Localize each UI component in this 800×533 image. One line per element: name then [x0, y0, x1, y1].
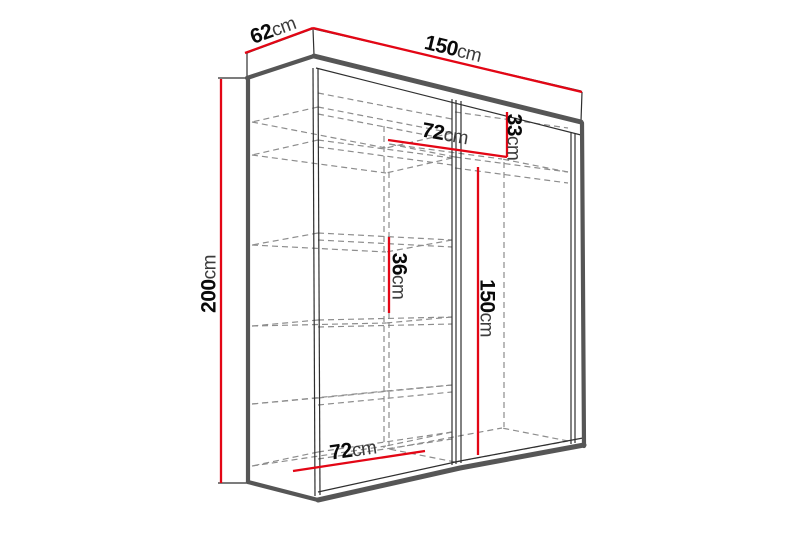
top-shelf-height-unit: cm [503, 136, 524, 160]
wardrobe-dimension-diagram: 62cm 150cm 200cm 72cm 33cm 36cm 150cm 72… [0, 0, 800, 533]
top-shelf-height-label: 33cm [504, 114, 525, 161]
hanging-space-height-value: 150 [476, 279, 499, 313]
shelf-spacing-value: 36 [388, 253, 411, 275]
height-dimension-label: 200cm [199, 255, 220, 313]
height-value: 200 [198, 279, 221, 313]
hanging-space-height-unit: cm [476, 313, 497, 337]
top-shelf-height-value: 33 [503, 114, 526, 136]
bottom-shelf-width-unit: cm [351, 437, 378, 461]
shelf-spacing-unit: cm [388, 275, 409, 299]
top-shelf-width-unit: cm [442, 124, 470, 149]
shelf-spacing-label: 36cm [389, 253, 410, 300]
hanging-space-height-label: 150cm [477, 279, 498, 337]
height-unit: cm [200, 255, 221, 279]
cabinet-silhouette [247, 28, 584, 500]
